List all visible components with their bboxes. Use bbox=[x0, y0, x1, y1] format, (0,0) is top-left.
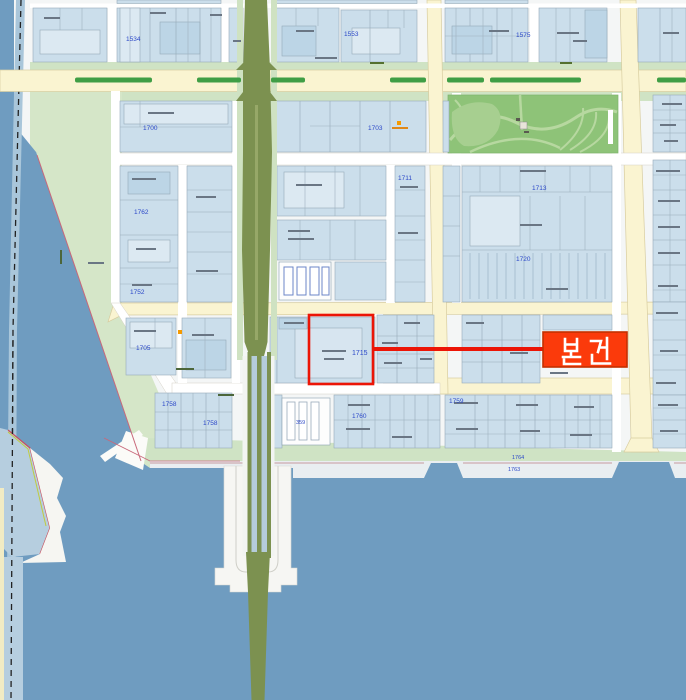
svg-text:1700: 1700 bbox=[143, 125, 158, 132]
svg-text:1764: 1764 bbox=[512, 455, 524, 461]
svg-text:1759: 1759 bbox=[449, 398, 464, 405]
svg-text:1711: 1711 bbox=[398, 175, 412, 182]
svg-text:1720: 1720 bbox=[516, 256, 531, 263]
svg-text:1703: 1703 bbox=[368, 125, 383, 132]
svg-text:1575: 1575 bbox=[516, 32, 531, 39]
svg-text:1760: 1760 bbox=[352, 413, 367, 420]
svg-text:1758: 1758 bbox=[203, 420, 218, 427]
svg-text:1553: 1553 bbox=[344, 31, 359, 38]
svg-text:1713: 1713 bbox=[532, 185, 547, 192]
svg-text:1752: 1752 bbox=[130, 289, 145, 296]
svg-text:1534: 1534 bbox=[126, 36, 141, 43]
svg-text:1705: 1705 bbox=[136, 345, 151, 352]
svg-text:1763: 1763 bbox=[508, 467, 520, 473]
svg-text:1758: 1758 bbox=[162, 401, 177, 408]
svg-text:359: 359 bbox=[296, 420, 305, 426]
svg-text:1762: 1762 bbox=[134, 209, 149, 216]
svg-text:1715: 1715 bbox=[352, 350, 368, 357]
